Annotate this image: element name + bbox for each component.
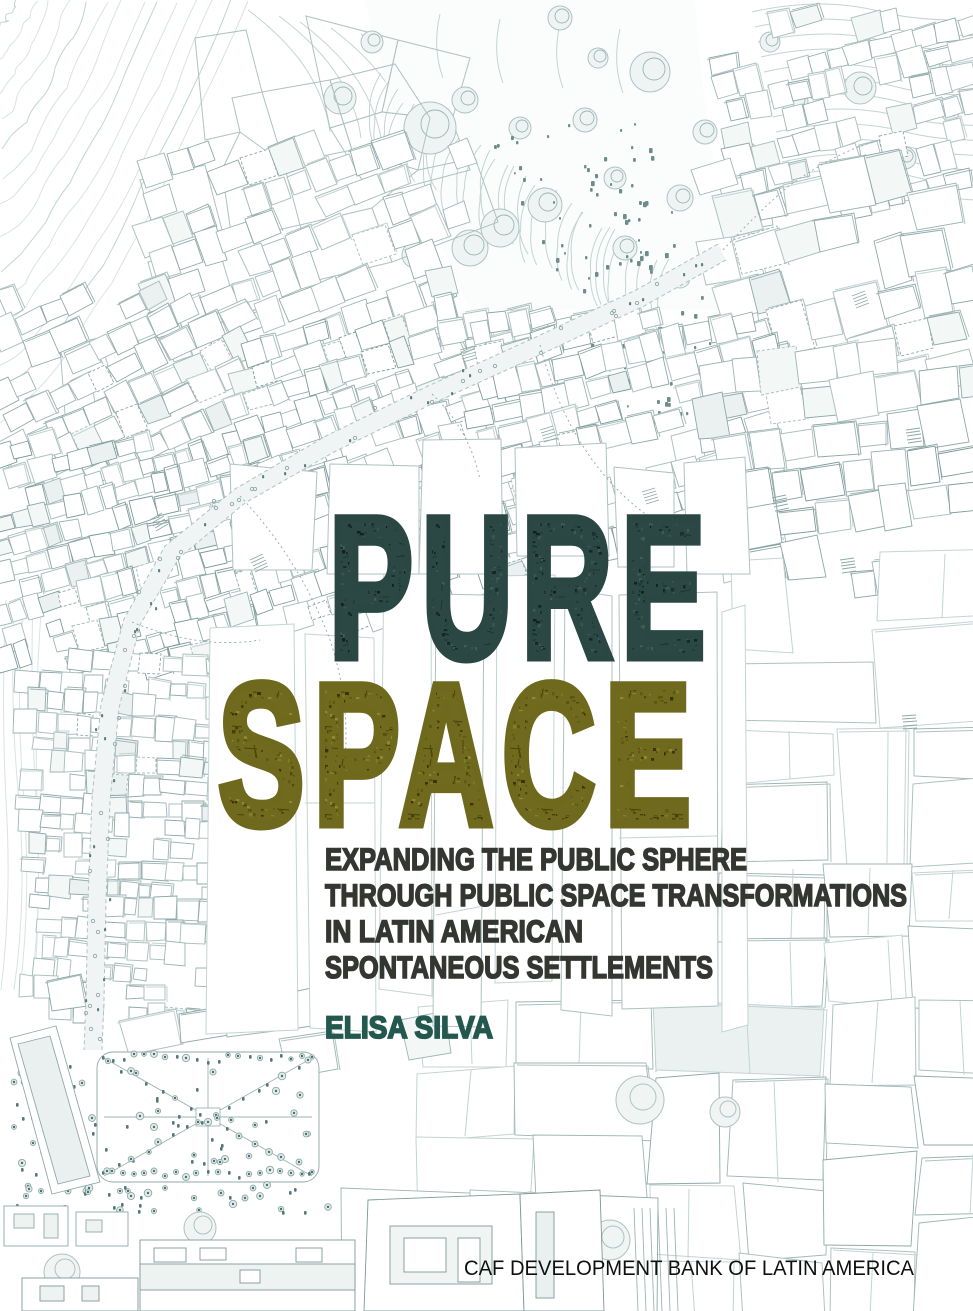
svg-text:SPONTANEOUS SETTLEMENTS: SPONTANEOUS SETTLEMENTS: [325, 949, 713, 985]
svg-text:IN LATIN AMERICAN: IN LATIN AMERICAN: [325, 913, 583, 949]
svg-text:CAF DEVELOPMENT BANK OF LATIN: CAF DEVELOPMENT BANK OF LATIN AMERICA: [464, 1256, 915, 1280]
svg-text:EXPANDING THE PUBLIC SPHERE: EXPANDING THE PUBLIC SPHERE: [325, 841, 747, 877]
svg-text:ELISA SILVA: ELISA SILVA: [325, 1009, 493, 1045]
svg-text:THROUGH PUBLIC SPACE TRANSFORM: THROUGH PUBLIC SPACE TRANSFORMATIONS: [325, 877, 907, 913]
svg-text:SPACE: SPACE: [218, 642, 700, 867]
